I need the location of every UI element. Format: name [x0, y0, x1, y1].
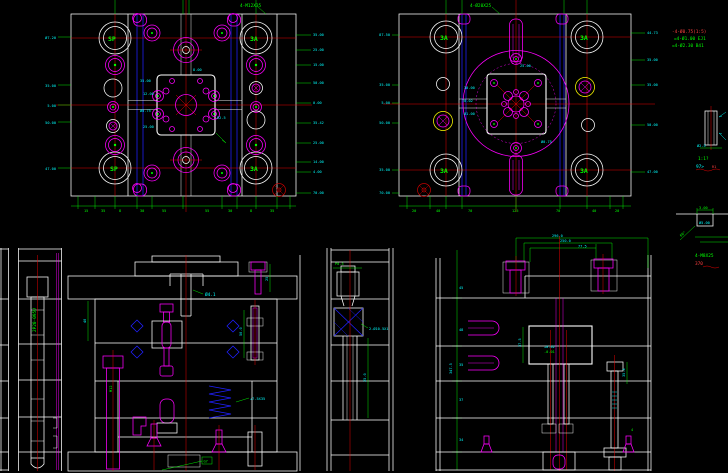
dim-label: Ø4.1 — [205, 291, 216, 298]
dim-label: 48 — [459, 328, 463, 332]
drain-symbol — [418, 184, 431, 197]
dim-label: 34 — [459, 438, 463, 442]
section-view-main: M12 Ø4.1 +7.5X35 50.0 25 40 — [68, 255, 300, 471]
dim-label: 50.00 — [379, 121, 390, 125]
gate-detail-view: 3.00 Ø5.00 60° — [676, 206, 728, 242]
dim-label: +7.5X35 — [250, 397, 265, 401]
section-note: 370 — [695, 261, 703, 267]
dim-label: 25.00 — [313, 141, 324, 145]
dim-label: 5.00 — [381, 101, 390, 105]
note-line: =4-Ø2.30 B41 — [672, 42, 704, 49]
support-bolt: M12 — [103, 350, 123, 471]
cavity-dim: 12.00 — [143, 92, 154, 96]
corner-label: 3A — [250, 165, 258, 173]
dim-label: 14.00 — [313, 160, 324, 164]
dim-tick: 20 — [615, 209, 619, 213]
dim-tick: 125 — [512, 209, 519, 213]
section-view-right: 347.5 45 48 35 37 34 296.0 250.0 77.5 — [436, 234, 728, 471]
plate-note: 4-M12X35 — [240, 3, 262, 9]
cavity-dim: Ø0.75 — [140, 108, 151, 113]
note-line: =4-Ø1.00 EJ1 — [674, 35, 706, 42]
dim-label: 35.00 — [647, 58, 658, 62]
sprue-section — [170, 274, 203, 316]
dim-label: 35 — [459, 363, 463, 367]
spring — [209, 386, 249, 418]
dim-tick: 40 — [436, 209, 440, 213]
drain-symbol — [273, 184, 286, 197]
dim-label: Ø7.20 — [45, 35, 56, 40]
dim-label: 5.00 — [47, 104, 56, 108]
dim-label: 77.5 — [578, 245, 587, 249]
dimensions-viewA — [58, 0, 311, 209]
note-line: -4-Ø0.75(1:5) — [672, 28, 706, 35]
insert-block — [523, 236, 592, 471]
dim-label: 45 — [459, 286, 463, 290]
rail-bushings — [133, 14, 238, 193]
balloon-label: G7 — [204, 460, 208, 464]
dim-tick: 70 — [556, 209, 560, 213]
cavity-dim: 8.00 — [193, 68, 202, 72]
dim-tick: 30 — [140, 209, 144, 213]
dim-label: 50.00 — [45, 121, 56, 125]
dim-label: 4 — [631, 428, 633, 432]
section-view-bolt-column: 2P20-095U — [19, 248, 62, 471]
dim-label: 37 — [459, 398, 463, 402]
detail-scale: 1:1? — [698, 156, 709, 162]
dim-label: 50.00 — [647, 123, 658, 127]
dim-label: 35.00 — [647, 83, 658, 87]
cad-canvas[interactable]: SP 3A SP 3A — [0, 0, 728, 473]
gate-dim: 60° — [679, 231, 687, 238]
detail-ref: R1 — [712, 165, 716, 169]
dim-label: 2-Ø10.5X1 — [369, 326, 388, 331]
plate-note: 4-Ø20X25 — [470, 2, 492, 9]
corner-label: 3A — [580, 34, 588, 42]
dim-label: 347.5 — [449, 363, 453, 374]
dim-tick: 70 — [468, 209, 472, 213]
hatched-bushing-block — [334, 308, 363, 336]
dim-label: 40 — [83, 319, 87, 323]
dim-tick: 8 — [119, 209, 121, 213]
dim-label: 35.00 — [379, 83, 390, 87]
cavity-pocket — [153, 75, 227, 143]
dim-tick: 55 — [205, 209, 209, 213]
water-channel — [131, 320, 239, 358]
dim-label: 44.73 — [647, 31, 658, 35]
dim-tick: 8 — [250, 209, 252, 213]
tolerance-label: -0.01 — [544, 350, 555, 354]
return-pin-section — [244, 300, 263, 365]
core-dim: T0.02 — [462, 99, 473, 103]
dim-label: 37.5 — [518, 338, 522, 347]
dim-label: 35.00 — [379, 168, 390, 172]
detail-dim: Ø2.5 — [697, 143, 706, 148]
dim-label: 70.00 — [379, 191, 390, 195]
side-core-pins — [468, 321, 499, 370]
clamp-bolts — [503, 254, 617, 296]
dim-label: 25 — [265, 277, 269, 281]
tolerance-label: +0.02 — [544, 345, 555, 349]
section-view-left-strip — [0, 248, 9, 471]
dim-label: 4.00 — [313, 170, 322, 174]
corner-label: 3A — [440, 167, 448, 175]
dim-tick: 35 — [101, 209, 105, 213]
section-view-sprue-column: P0.5 2-Ø10.5X1 25.0 — [327, 248, 393, 471]
dim-label: 15.00 — [313, 63, 324, 67]
dim-label: 50.00 — [313, 81, 324, 85]
core-dim: Ø0.75 — [541, 139, 552, 144]
dim-label: 0.00 — [313, 101, 322, 105]
dim-label: 25.0 — [363, 373, 367, 382]
corner-label: 3A — [250, 35, 258, 43]
corner-label: 3A — [440, 34, 448, 42]
right-notes: -4-Ø0.75(1:5) =4-Ø1.00 EJ1 =4-Ø2.30 B41 — [672, 28, 706, 49]
dim-tick: 40 — [592, 209, 596, 213]
dim-label: 250.0 — [560, 239, 571, 243]
dim-label: 47.00 — [45, 167, 56, 171]
plan-view-fixed-half: SP 3A SP 3A — [45, 0, 324, 213]
cavity-dim: R2.5 — [217, 116, 226, 120]
dim-label: 35.00 — [45, 84, 56, 88]
corner-label: SP — [110, 165, 118, 173]
part-number: 2P20-095U — [32, 308, 38, 332]
dim-tick: 20 — [412, 209, 416, 213]
core-dim: 25.00 — [520, 64, 531, 68]
dim-label: P0.5 — [335, 262, 344, 266]
dim-tick: 30 — [228, 209, 232, 213]
dim-label: 35.4 — [622, 368, 626, 377]
corner-label: SP — [108, 35, 116, 43]
core-dim: Ø1.00 — [464, 111, 475, 116]
plan-view-moving-half: 3A 3A 3A 3A — [379, 0, 658, 213]
dim-label: 47.00 — [647, 170, 658, 174]
gate-dim: Ø5.00 — [699, 220, 710, 225]
dimensions-viewB — [392, 0, 645, 209]
core-dim: 30.00 — [464, 86, 475, 90]
dim-tick: 55 — [162, 209, 166, 213]
section-note: 4-M8X25 — [695, 253, 714, 259]
dim-label: 25.00 — [313, 48, 324, 52]
dim-label: 296.0 — [552, 234, 563, 238]
cavity-dim: 35.00 — [140, 79, 151, 83]
dim-label: 50.0 — [239, 327, 243, 336]
pin-detail-view: Ø2.5 1:1? 97> R1 — [696, 106, 726, 171]
corner-label: 3A — [580, 167, 588, 175]
cavity-dim: 25.00 — [143, 125, 154, 129]
screw-label: M12 — [109, 386, 113, 393]
dim-tick: 15 — [84, 209, 88, 213]
gate-dim: 3.00 — [699, 206, 708, 210]
dim-label: 35.42 — [313, 121, 324, 125]
dim-label: 35.00 — [313, 33, 324, 37]
water-fitting — [107, 82, 263, 133]
cad-viewport[interactable]: SP 3A SP 3A — [0, 0, 728, 473]
dim-label: 87.50 — [379, 33, 390, 37]
dim-label: 70.00 — [313, 191, 324, 195]
dim-tick: 35 — [270, 209, 274, 213]
